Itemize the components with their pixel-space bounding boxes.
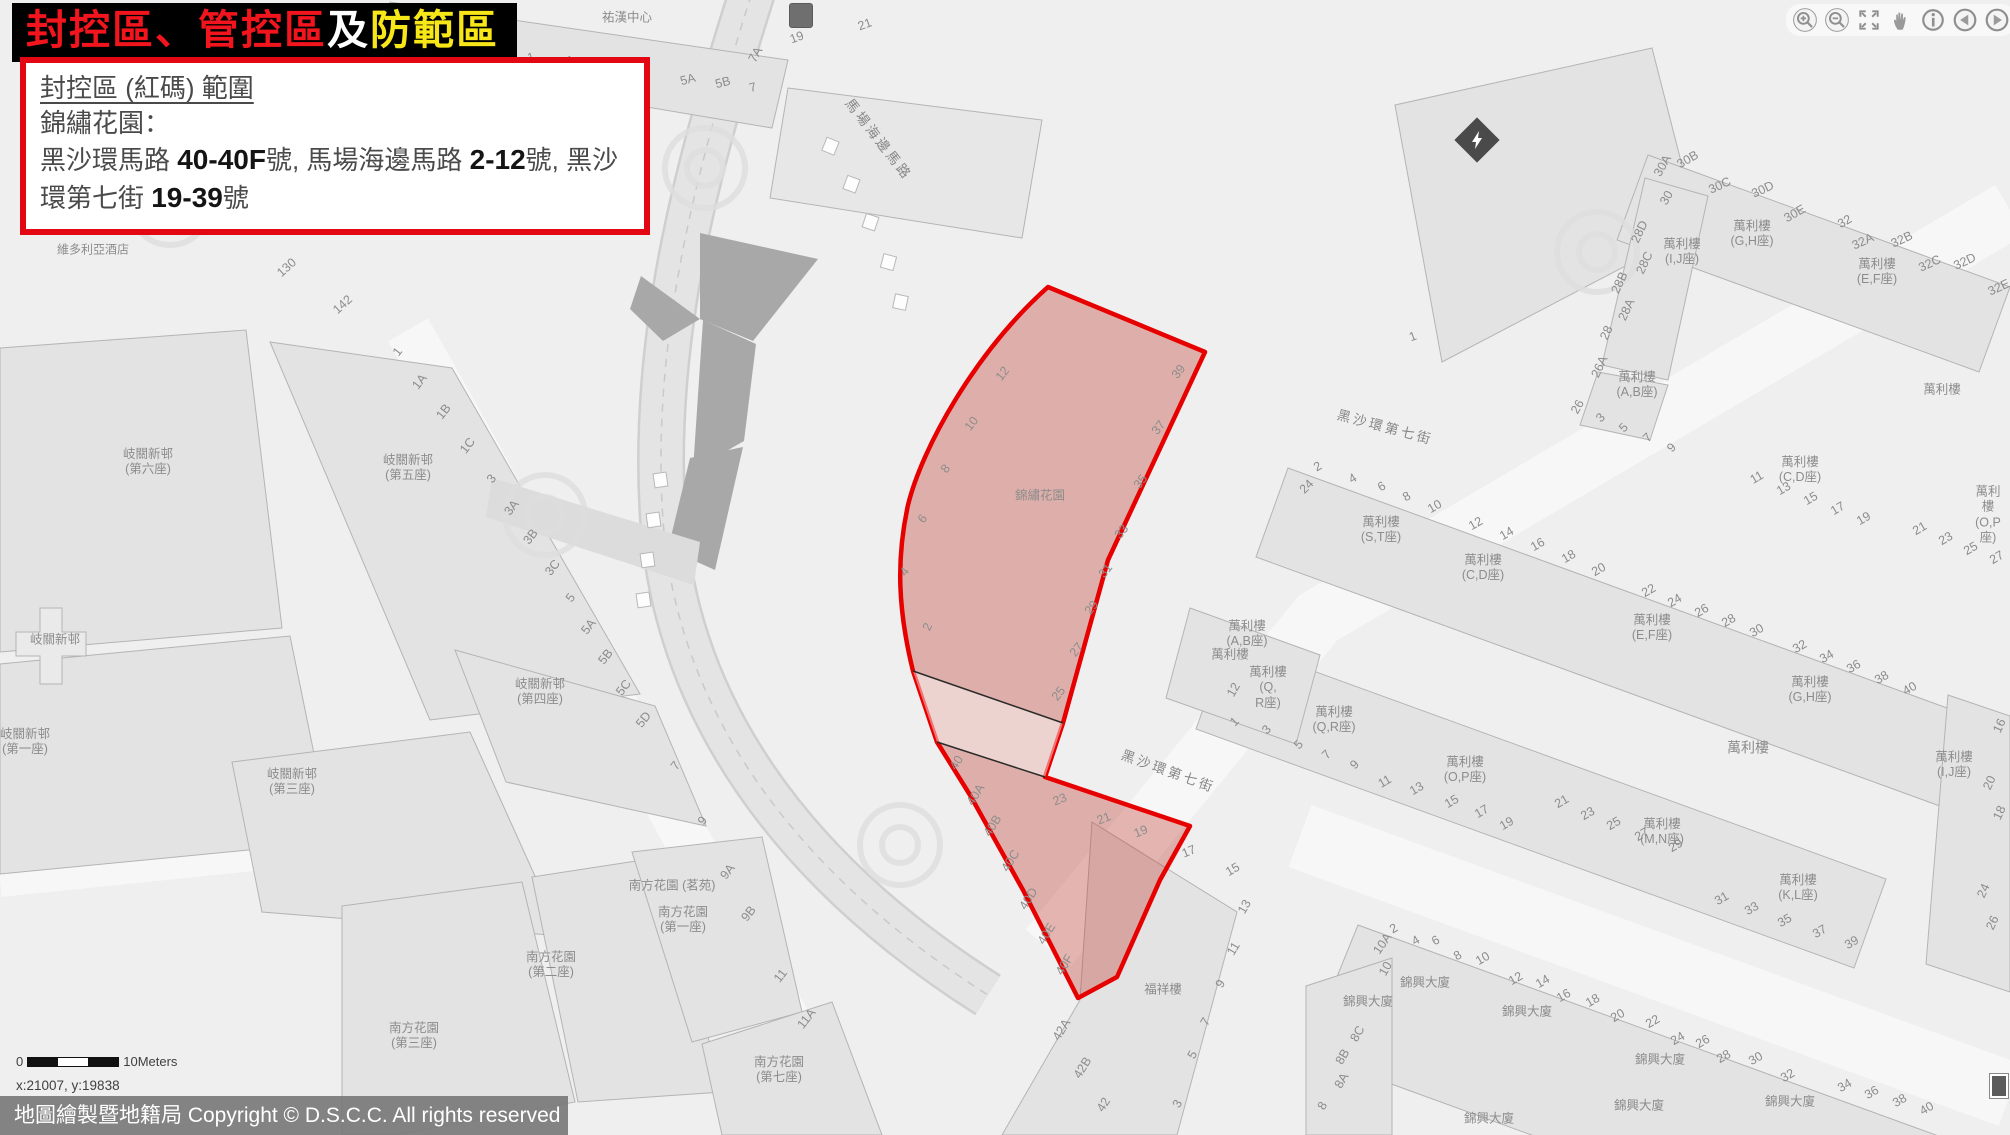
- zoom-out-button[interactable]: [1824, 7, 1850, 33]
- info-address: 黑沙環馬路 40-40F號, 馬場海邊馬路 2-12號, 黑沙環第七街 19-3…: [40, 141, 630, 217]
- next-extent-button[interactable]: [1984, 7, 2010, 33]
- cursor-coordinates: x:21007, y:19838: [16, 1078, 120, 1093]
- full-extent-icon: [1856, 7, 1882, 33]
- legend-button[interactable]: [789, 3, 813, 28]
- address-number: 19-39: [151, 182, 223, 213]
- zoom-in-button[interactable]: [1792, 7, 1818, 33]
- identify-button[interactable]: [1920, 7, 1946, 33]
- info-title: 封控區 (紅碼) 範圍: [40, 71, 630, 106]
- map-toolbar: [1786, 4, 2010, 36]
- pan-hand-icon: [1888, 7, 1914, 33]
- scale-bar: 0 10Meters: [16, 1054, 177, 1069]
- banner-red-text: 封控區、管控區: [26, 7, 327, 53]
- arrow-right-icon: [1984, 7, 2010, 33]
- attribution-bar: 地圖繪製暨地籍局 Copyright © D.S.C.C. All rights…: [0, 1096, 568, 1135]
- arrow-left-icon: [1952, 7, 1978, 33]
- address-number: 2-12: [470, 144, 526, 175]
- scale-zero: 0: [16, 1054, 23, 1069]
- banner-yellow-text: 防範區: [370, 7, 499, 53]
- previous-extent-button[interactable]: [1952, 7, 1978, 33]
- address-text: 號: [223, 183, 249, 213]
- map-application: 祐漢中心11A355A5B77A1921馬場海邊馬路維多利亞酒店130142岐關…: [0, 0, 2010, 1135]
- zoom-out-icon: [1824, 7, 1850, 33]
- info-icon: [1920, 7, 1946, 33]
- full-extent-button[interactable]: [1856, 7, 1882, 33]
- scale-bar-segments: [27, 1057, 119, 1067]
- title-banner: 封控區、管控區及防範區: [12, 3, 517, 62]
- banner-white-text: 及: [327, 7, 370, 53]
- scale-label: 10Meters: [123, 1054, 177, 1069]
- address-text: 黑沙環馬路: [40, 145, 177, 175]
- info-subtitle: 錦繡花園：: [40, 106, 630, 141]
- address-text: 號, 馬場海邊馬路: [266, 145, 470, 175]
- lockdown-info-box: 封控區 (紅碼) 範圍 錦繡花園： 黑沙環馬路 40-40F號, 馬場海邊馬路 …: [20, 57, 650, 235]
- overview-map-button[interactable]: [1990, 1074, 2008, 1098]
- address-number: 40-40F: [177, 144, 266, 175]
- zoom-in-icon: [1792, 7, 1818, 33]
- pan-button[interactable]: [1888, 7, 1914, 33]
